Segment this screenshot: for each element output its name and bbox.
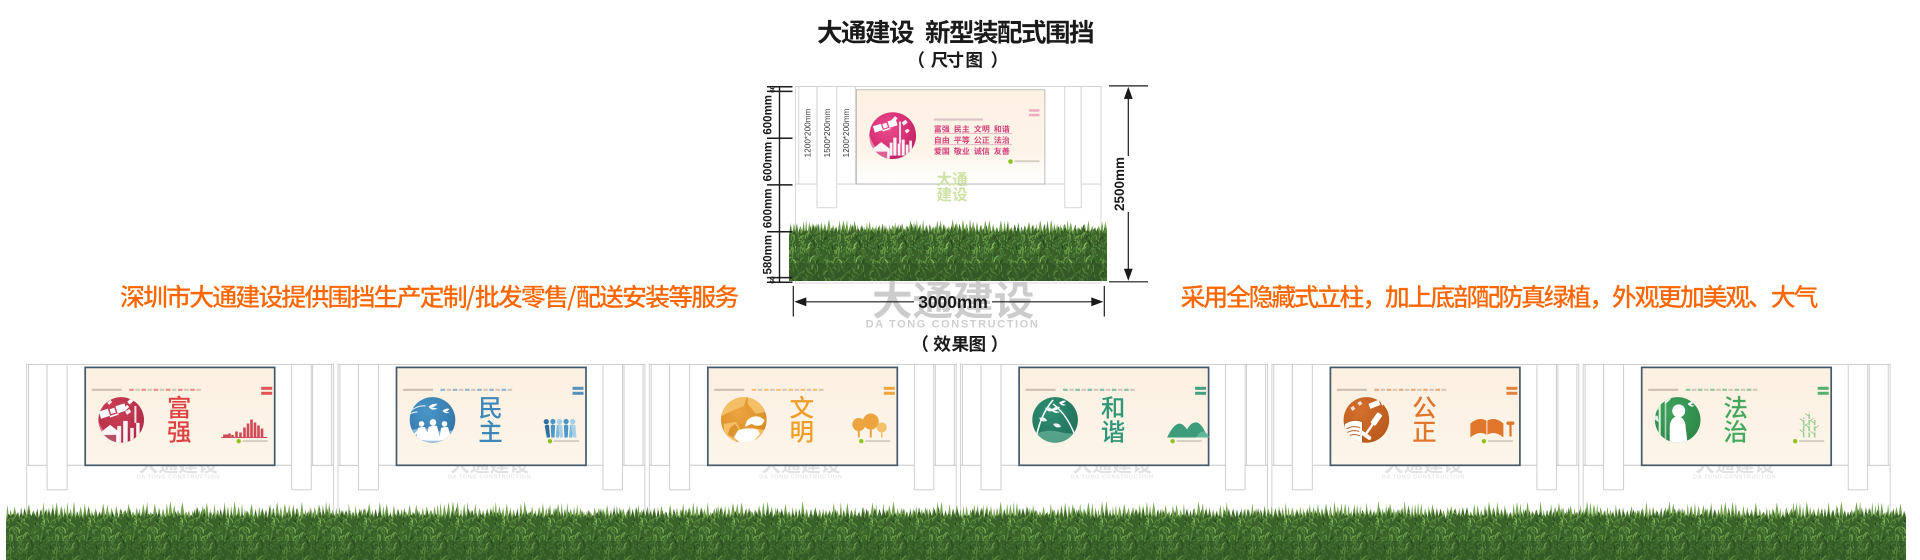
svg-text:DA TONG CONSTRUCTION: DA TONG CONSTRUCTION: [866, 319, 1040, 331]
svg-text:3000mm: 3000mm: [918, 292, 988, 312]
svg-text:2500mm: 2500mm: [1112, 157, 1127, 211]
svg-text:DA TONG CONSTRUCTION: DA TONG CONSTRUCTION: [759, 475, 842, 481]
svg-text:1500*200mm: 1500*200mm: [823, 108, 832, 157]
svg-text:60: 60: [770, 85, 777, 93]
svg-text:1200*200mm: 1200*200mm: [804, 108, 813, 157]
svg-text:580mm: 580mm: [763, 235, 775, 275]
svg-text:600mm: 600mm: [763, 142, 775, 182]
svg-text:DA TONG CONSTRUCTION: DA TONG CONSTRUCTION: [1382, 475, 1465, 481]
svg-text:600mm: 600mm: [763, 188, 775, 228]
svg-text:DA TONG CONSTRUCTION: DA TONG CONSTRUCTION: [137, 475, 220, 481]
svg-text:DA TONG CONSTRUCTION: DA TONG CONSTRUCTION: [1693, 475, 1776, 481]
svg-text:600mm: 600mm: [763, 95, 775, 135]
svg-text:60: 60: [770, 276, 777, 284]
svg-text:1200*200mm: 1200*200mm: [842, 108, 851, 157]
svg-text:DA TONG CONSTRUCTION: DA TONG CONSTRUCTION: [448, 475, 531, 481]
svg-text:DA TONG CONSTRUCTION: DA TONG CONSTRUCTION: [1071, 475, 1154, 481]
